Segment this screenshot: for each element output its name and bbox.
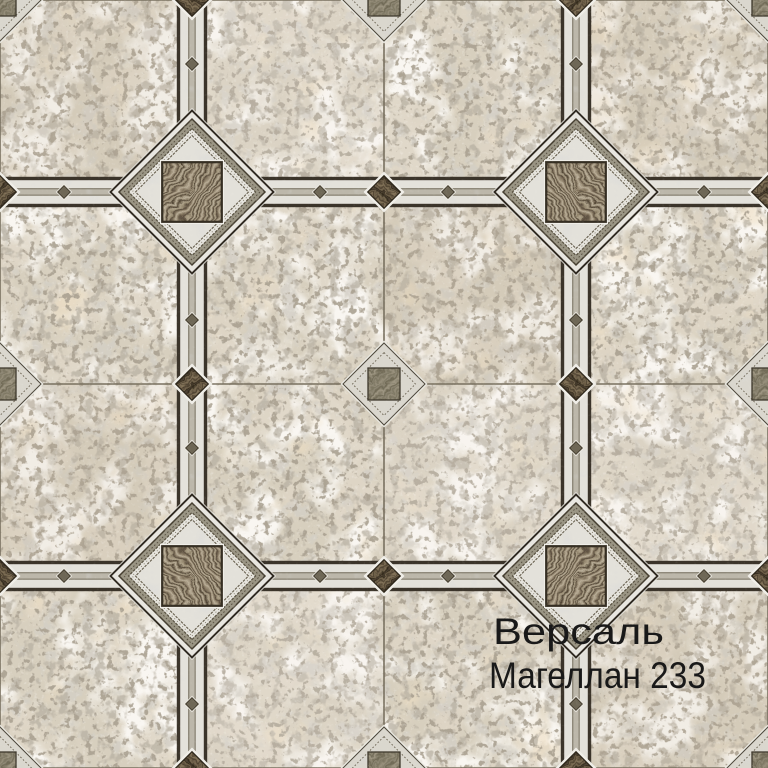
svg-text:Версаль: Версаль bbox=[493, 611, 664, 652]
svg-text:Магеллан 233: Магеллан 233 bbox=[489, 655, 706, 696]
